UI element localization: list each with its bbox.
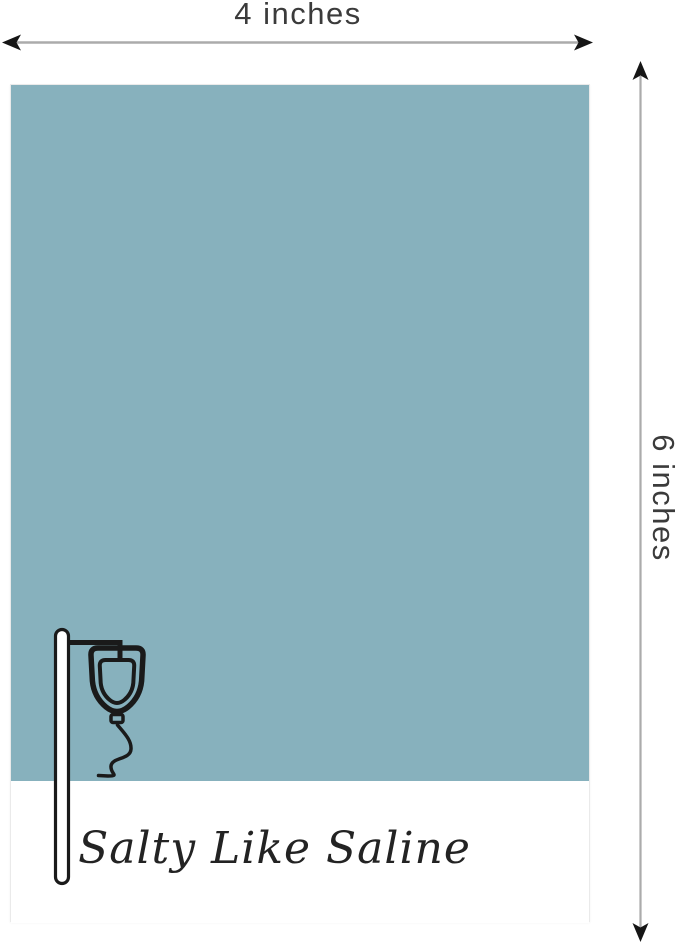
arrowhead-right-icon [574,35,593,51]
width-dimension-label: 4 inches [3,0,593,32]
product-dimension-image: 4 inches 6 inches [0,0,679,946]
arrowhead-left-icon [2,35,21,51]
caption-text: Salty Like Saline [11,777,538,919]
arrowhead-down-icon [633,923,649,942]
arrowhead-up-icon [633,61,649,80]
width-arrow [2,35,593,51]
height-dimension-label-text: 6 inches [645,434,679,561]
iv-bag-inner [100,660,134,703]
iv-bag-nub [111,715,123,723]
iv-tube [99,725,132,776]
product-card: Salty Like Saline [10,84,590,922]
